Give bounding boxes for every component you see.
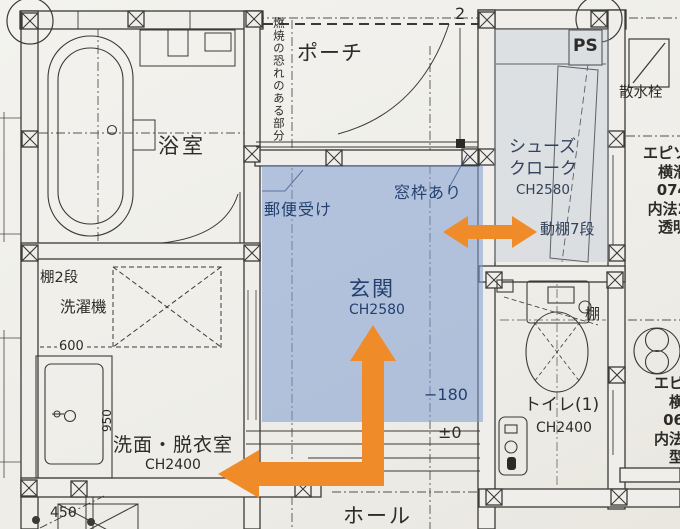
window-spec-top-line: 透明 [630,218,680,237]
ps-label: PS [573,37,598,56]
shelf-two-label: 棚2段 [40,270,78,286]
mailbox-label: 郵便受け [264,201,332,219]
shelf-label: 棚 [585,306,600,323]
window-spec-top-line: 横滑 [630,163,680,182]
window-spec-top-line: 内法2 [630,200,680,219]
room-label-hall: ホール [343,505,412,529]
window-spec-top-line: 074 [630,181,680,200]
washroom-sliding-door [245,290,259,420]
bath-door-arc [162,192,240,243]
shower-counter [133,30,235,150]
porch-elements [256,24,478,148]
room-label-washroom: 洗面・脱衣室 [113,435,233,456]
window-spec-bottom: エピ 横 06 内法 型 [632,374,680,467]
toilet-fixture [497,280,598,392]
window-spec-top-line: エピソ [630,144,680,163]
combustion-note: 燃焼の恐れのある部分 [272,17,285,149]
window-spec-bottom-line: 内法 [632,430,680,449]
movable-shelf-label: 動棚7段 [540,221,595,238]
washroom-ceiling: CH2400 [145,458,201,474]
room-label-toilet: トイレ(1) [524,396,599,415]
toilet-ceiling: CH2400 [536,421,592,437]
level-minus-label: −180 [424,386,468,404]
floor-plan-drawing [0,0,680,529]
room-label-bathroom: 浴室 [158,135,206,159]
window-spec-bottom-line: 横 [632,393,680,412]
room-label-porch: ポーチ [297,42,363,66]
window-spec-bottom-line: エピ [632,374,680,393]
toilet-corner-sink [499,417,527,475]
washing-machine-space [113,267,221,347]
shoe-closet-ceiling: CH2580 [516,183,570,198]
bath-door-opening [245,190,259,242]
bathtub [48,36,133,236]
room-label-entrance: 玄関 [349,278,395,302]
dim-600: 600 [59,340,84,355]
window-spec-bottom-line: 06 [632,411,680,430]
grid-number: 2 [455,5,465,23]
shoe-closet-label-1: シューズ [509,138,576,157]
water-tap-symbol [629,39,669,87]
shoe-closet-label-2: クローク [509,160,577,179]
washing-machine-label: 洗濯機 [60,299,107,316]
window-spec-top: エピソ 横滑 074 内法2 透明 [630,144,680,237]
level-zero-label: ±0 [438,424,462,442]
outer-wall-lines [0,112,21,478]
floor-plan: 浴室 ポーチ 燃焼の恐れのある部分 2 PS 散水栓 郵便受け 窓枠あり シュー… [0,0,680,529]
double-circle-symbol [634,328,680,374]
entrance-ceiling: CH2580 [349,303,405,319]
lower-room-fragment [33,496,139,529]
dim-950: 950 [101,409,114,432]
window-spec-bottom-line: 型 [632,448,680,467]
window-frame-label: 窓枠あり [394,184,462,202]
dim-450: 450 [50,506,77,522]
water-tap-label: 散水栓 [619,85,663,101]
